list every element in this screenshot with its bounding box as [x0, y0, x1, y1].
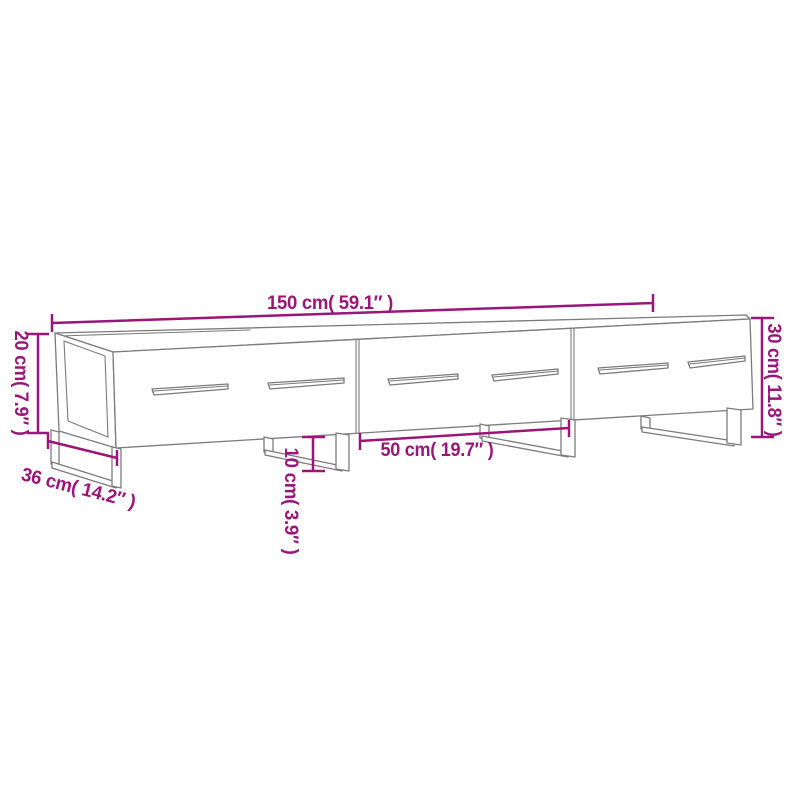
leg-bottom-rail — [482, 436, 568, 457]
width-dimension-label: 150 cm( 59.1″ ) — [267, 293, 393, 314]
leg-bottom-rail — [265, 450, 342, 471]
leg-height-dimension-label: 10 cm( 3.9″ ) — [280, 448, 301, 555]
total-height-dimension-label: 30 cm( 11.8″ ) — [763, 324, 784, 437]
cabinet-drawing — [51, 315, 753, 488]
product-dimension-diagram: 150 cm( 59.1″ ) 20 cm( 7.9″ ) 30 cm( 11.… — [0, 0, 800, 800]
dimension-diagram-canvas: 150 cm( 59.1″ ) 20 cm( 7.9″ ) 30 cm( 11.… — [0, 0, 800, 800]
carcass-height-dimension-label: 20 cm( 7.9″ ) — [10, 331, 31, 436]
leg-bottom-rail — [642, 427, 734, 446]
drawer-width-dimension-label: 50 cm( 19.7″ ) — [381, 440, 494, 461]
dimension-carcass-height: 20 cm( 7.9″ ) — [10, 331, 49, 436]
dimension-leg-height: 10 cm( 3.9″ ) — [280, 437, 325, 555]
dimension-total-height: 30 cm( 11.8″ ) — [751, 318, 784, 437]
leg-near-post — [336, 433, 349, 471]
leg-near-post — [727, 408, 741, 445]
